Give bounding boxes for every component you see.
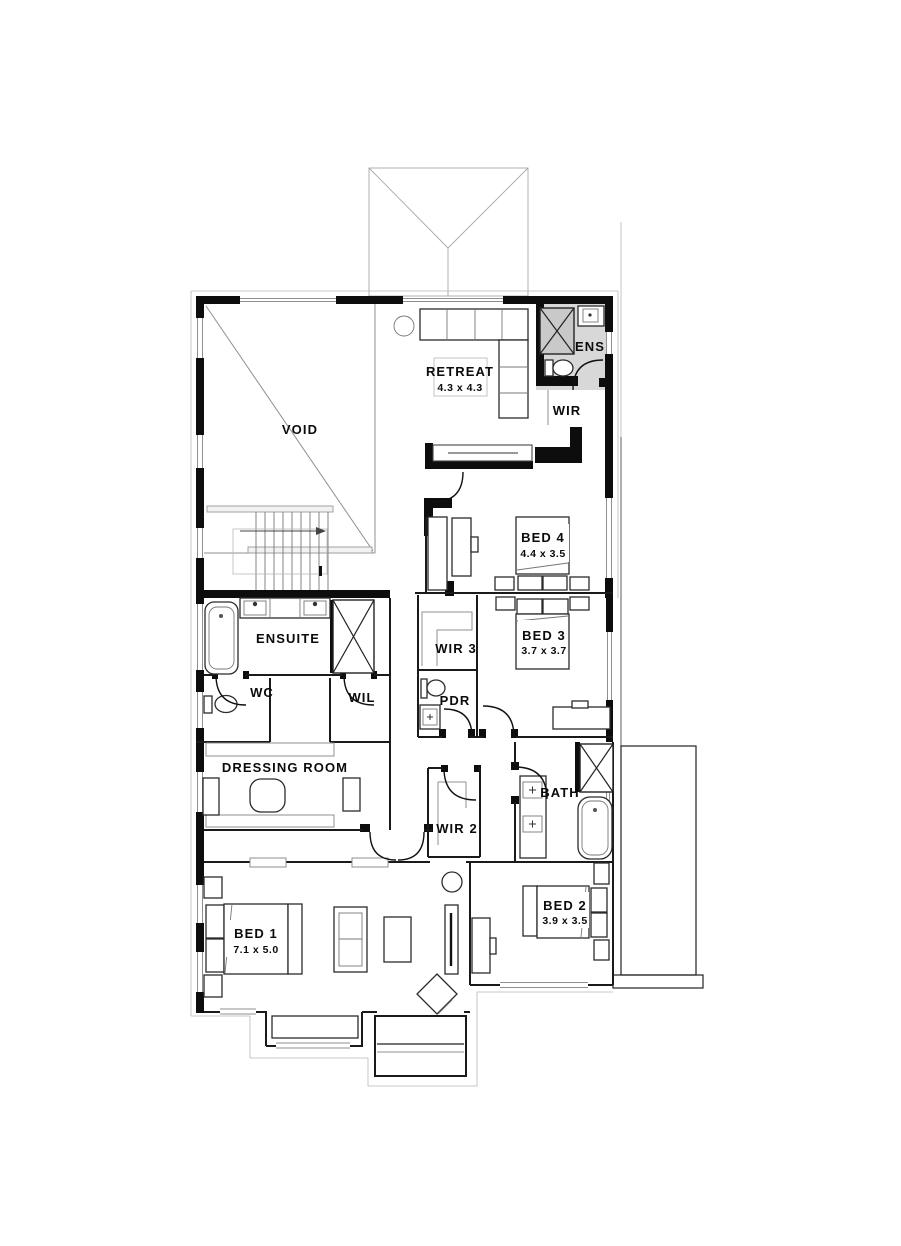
room-dims-bed4: 4.4 x 3.5 bbox=[520, 548, 565, 560]
pdr-door bbox=[444, 709, 472, 737]
wir3-shelves bbox=[422, 612, 472, 666]
ens-toilet bbox=[545, 360, 573, 376]
ens-shower bbox=[540, 308, 574, 354]
room-label-ens: ENS bbox=[575, 339, 605, 354]
stair-direction-arrow bbox=[316, 527, 326, 535]
stair-up-mark bbox=[319, 566, 322, 576]
retreat-console bbox=[433, 445, 532, 461]
wc-toilet bbox=[204, 696, 237, 714]
bed3-furniture bbox=[496, 597, 610, 729]
staircase bbox=[207, 506, 372, 590]
window-seat bbox=[272, 1016, 358, 1038]
lower-roof-outline bbox=[621, 746, 696, 975]
room-label-wir3: WIR 3 bbox=[435, 641, 477, 656]
bed3-desk bbox=[553, 707, 610, 729]
room-label-wir2: WIR 2 bbox=[436, 821, 478, 836]
retreat-hall-door bbox=[433, 472, 463, 502]
bath-bathtub bbox=[578, 797, 612, 859]
dressing-ottoman bbox=[250, 779, 285, 812]
room-label-ensuite: ENSUITE bbox=[256, 631, 320, 646]
lower-roof-strip bbox=[613, 975, 703, 988]
room-label-void: VOID bbox=[282, 422, 318, 437]
dressing-door-right bbox=[398, 832, 424, 860]
wir2-door bbox=[444, 768, 476, 800]
floor-plan-page: VOID RETREAT 4.3 x 4.3 ENS WIR BED 4 4.4… bbox=[0, 0, 901, 1246]
floor-plan-drawing: VOID RETREAT 4.3 x 4.3 ENS WIR BED 4 4.4… bbox=[0, 0, 901, 1246]
ens-vanity bbox=[578, 306, 604, 326]
room-label-bed1: BED 1 bbox=[234, 926, 278, 941]
ensuite-bathtub bbox=[205, 602, 238, 674]
room-label-wir: WIR bbox=[553, 403, 582, 418]
ensuite-vanity bbox=[240, 598, 330, 618]
room-dims-bed2: 3.9 x 3.5 bbox=[542, 915, 587, 927]
room-dims-retreat: 4.3 x 4.3 bbox=[437, 382, 482, 394]
bath-shower bbox=[580, 744, 613, 792]
ensuite-shower bbox=[333, 600, 374, 673]
room-label-dressing: DRESSING ROOM bbox=[222, 760, 348, 775]
room-label-pdr: PDR bbox=[440, 693, 471, 708]
dressing-door-left bbox=[370, 832, 396, 860]
room-labels: VOID RETREAT 4.3 x 4.3 ENS WIR BED 4 4.4… bbox=[222, 339, 605, 957]
room-label-bath: BATH bbox=[540, 785, 580, 800]
bed3-door bbox=[483, 706, 514, 737]
room-dims-bed3: 3.7 x 3.7 bbox=[521, 645, 566, 657]
room-label-wil: WIL bbox=[348, 690, 375, 705]
room-label-bed3: BED 3 bbox=[522, 628, 566, 643]
room-label-bed4: BED 4 bbox=[521, 530, 565, 545]
room-dims-bed1: 7.1 x 5.0 bbox=[233, 944, 278, 956]
dressing-furniture bbox=[203, 778, 360, 815]
pdr-vanity bbox=[420, 705, 440, 729]
retreat-round-table bbox=[394, 316, 414, 336]
balcony bbox=[375, 1016, 466, 1076]
room-label-retreat: RETREAT bbox=[426, 364, 494, 379]
round-stool bbox=[442, 872, 462, 892]
bed1-coffee-table bbox=[384, 917, 411, 962]
roof-outline bbox=[369, 168, 528, 296]
room-label-bed2: BED 2 bbox=[543, 898, 587, 913]
bed1-rug-diamond bbox=[417, 974, 457, 1014]
room-label-wc: WC bbox=[250, 685, 274, 700]
